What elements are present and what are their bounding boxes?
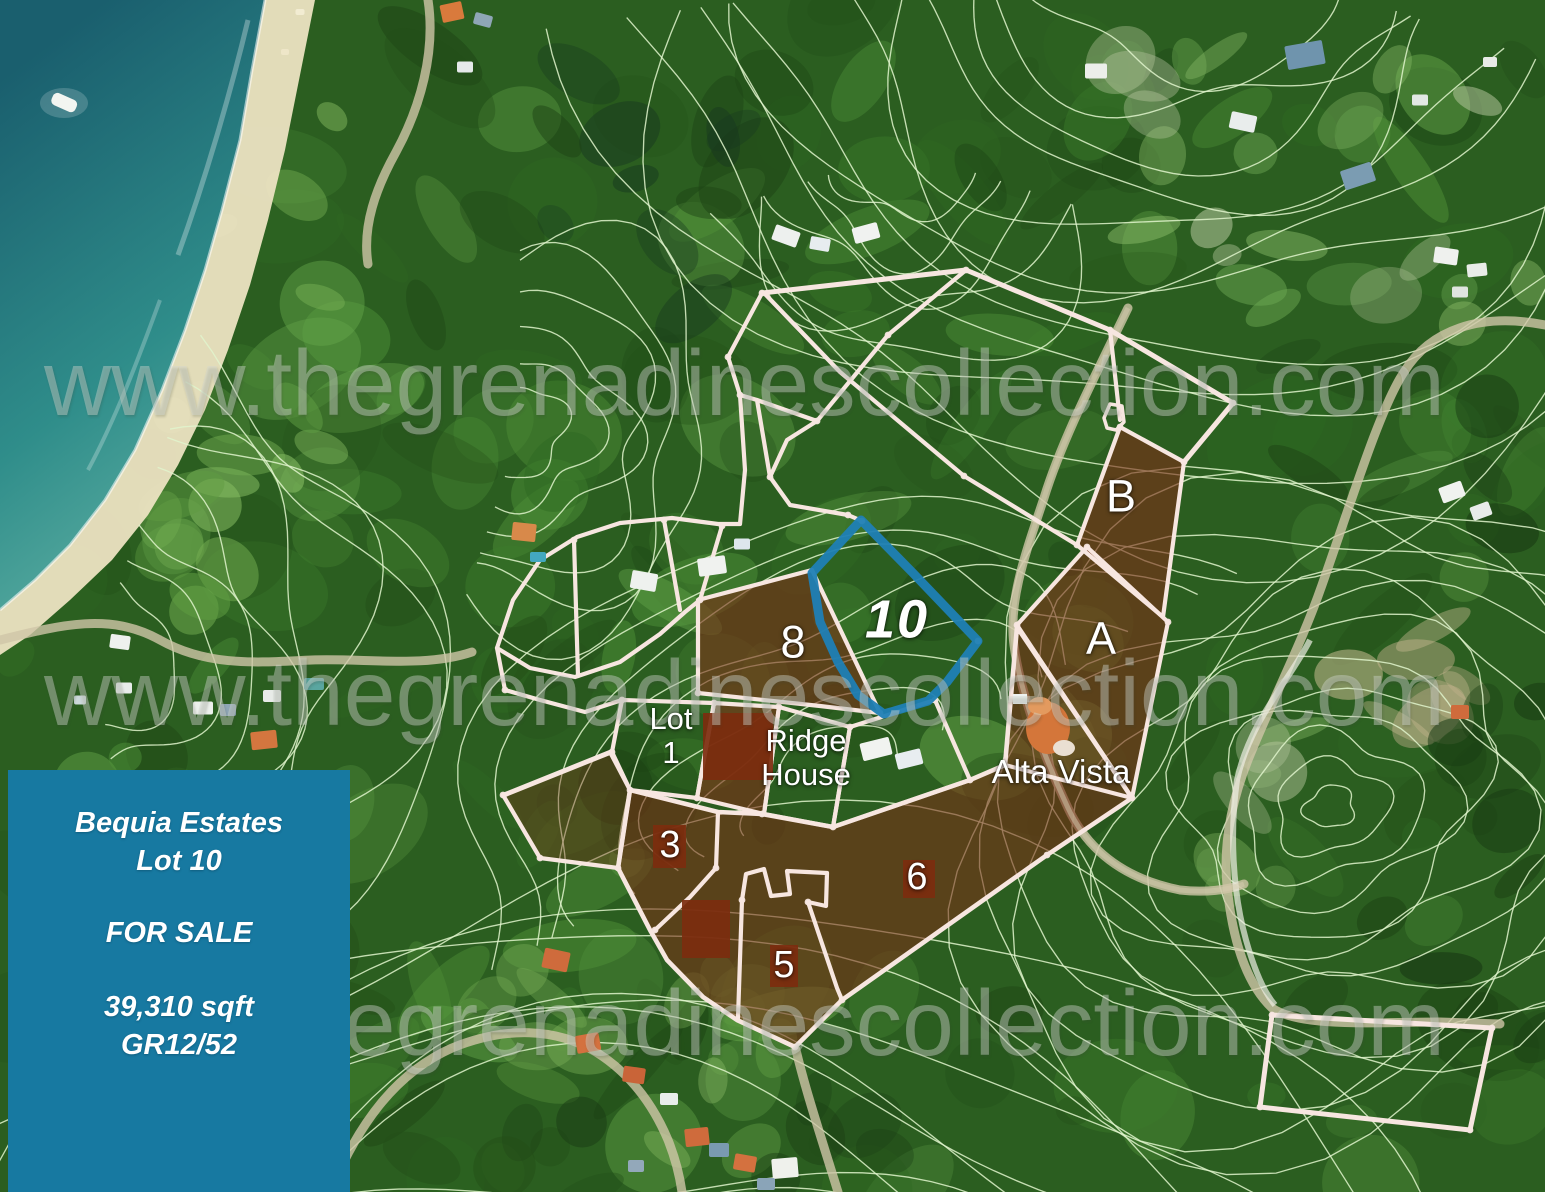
- lot-label-3: 3: [659, 825, 680, 867]
- building-roof: [296, 9, 305, 15]
- building-roof: [1452, 287, 1468, 298]
- lot-label-6: 6: [906, 857, 927, 899]
- listing-status: FOR SALE: [106, 914, 253, 952]
- listing-lot-name: Lot 10: [136, 842, 221, 880]
- listing-reference: GR12/52: [121, 1026, 237, 1064]
- lot-label-8: 8: [780, 617, 805, 667]
- listing-area: 39,310 sqft: [104, 988, 254, 1026]
- lot-label-1: Lot 1: [649, 702, 692, 770]
- building-roof: [530, 552, 546, 562]
- building-roof: [1433, 246, 1459, 265]
- building-roof: [757, 1178, 775, 1190]
- building-roof: [511, 522, 537, 542]
- building-roof: [1466, 262, 1487, 277]
- ridge-house-label: Ridge House: [761, 724, 851, 792]
- building-roof: [281, 49, 289, 55]
- building-roof: [1483, 57, 1497, 67]
- lot-label-a: A: [1086, 613, 1116, 663]
- building-roof: [1085, 64, 1107, 79]
- building-roof: [628, 1160, 644, 1172]
- building-roof: [734, 539, 750, 550]
- listing-estate-name: Bequia Estates: [75, 804, 283, 842]
- lot-number-square: [682, 900, 730, 958]
- building-roof: [709, 1143, 729, 1157]
- building-roof: [684, 1127, 710, 1147]
- watermark-text: www.thegrenadinescollection.com: [44, 330, 1445, 437]
- building-roof: [771, 1157, 799, 1179]
- lot-label-10: 10: [865, 590, 929, 649]
- lot-label-b: B: [1106, 471, 1136, 521]
- ridge-house-line2: House: [761, 758, 851, 792]
- map-canvas: www.thegrenadinescollection.com www.theg…: [0, 0, 1545, 1192]
- lot-label-1-line1: Lot: [649, 702, 692, 736]
- building-roof: [1451, 705, 1469, 719]
- ridge-house-line1: Ridge: [761, 724, 851, 758]
- building-roof: [660, 1093, 678, 1105]
- alta-vista-label: Alta Vista: [992, 754, 1131, 790]
- building-roof: [457, 62, 473, 73]
- lot-label-5: 5: [773, 945, 794, 987]
- listing-info-card: Bequia Estates Lot 10 FOR SALE 39,310 sq…: [8, 770, 350, 1192]
- lot-label-1-line2: 1: [649, 736, 692, 770]
- watermark-text: www.thegrenadinescollection.com: [44, 640, 1445, 747]
- building-roof: [1412, 95, 1428, 106]
